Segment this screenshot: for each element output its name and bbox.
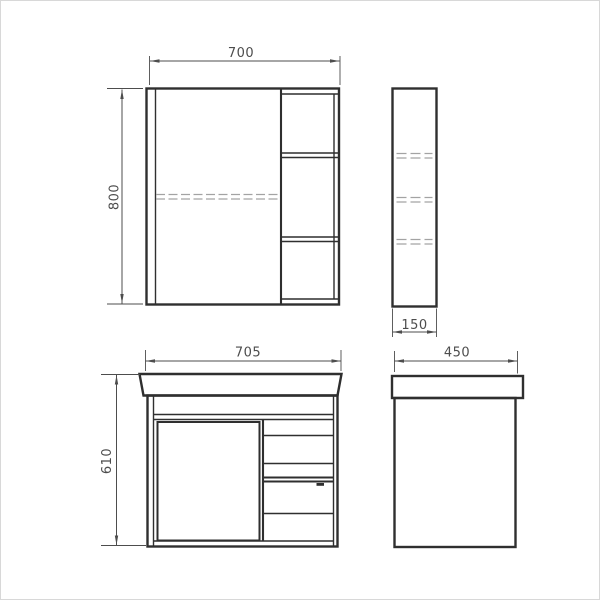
dimension-width-700: 700 (150, 46, 341, 85)
dimension-height-800: 800 (107, 89, 143, 305)
countertop-front (140, 374, 342, 396)
arrowhead-left-icon (395, 359, 405, 362)
vanity-body-side-outline (395, 398, 516, 547)
drawer-handle (317, 483, 325, 486)
drawing-frame: 700 800 150 (0, 0, 600, 600)
arrowhead-right-icon (427, 330, 437, 333)
dimension-label: 800 (108, 184, 123, 210)
technical-drawing-canvas: 700 800 150 (1, 1, 599, 599)
vanity-body-outline (148, 396, 338, 547)
dimension-width-705: 705 (146, 346, 342, 372)
arrowhead-right-icon (508, 359, 518, 362)
mirror-cabinet-outline (147, 89, 340, 305)
arrowhead-right-icon (332, 359, 342, 362)
arrowhead-bottom-icon (115, 536, 118, 546)
arrowhead-bottom-icon (120, 294, 123, 304)
dimension-label: 450 (444, 346, 470, 361)
arrowhead-left-icon (146, 359, 156, 362)
arrowhead-top-icon (115, 375, 118, 385)
vanity-side-view: 450 (392, 346, 523, 548)
dimension-label: 610 (100, 448, 115, 474)
dimension-depth-150: 150 (393, 309, 437, 338)
cabinet-door (158, 422, 260, 541)
dimension-height-610: 610 (100, 375, 146, 546)
mirror-cabinet-side-view: 150 (393, 89, 437, 338)
dimension-label: 150 (401, 318, 427, 333)
dimension-label: 700 (228, 46, 254, 61)
dimension-label: 705 (235, 346, 261, 361)
vanity-front-view: 705 610 (100, 346, 342, 547)
mirror-cabinet-front-view: 700 800 (107, 46, 340, 305)
arrowhead-right-icon (330, 59, 340, 62)
countertop-side (392, 376, 523, 398)
arrowhead-left-icon (150, 59, 160, 62)
dimension-depth-450: 450 (395, 346, 518, 374)
arrowhead-top-icon (120, 90, 123, 100)
